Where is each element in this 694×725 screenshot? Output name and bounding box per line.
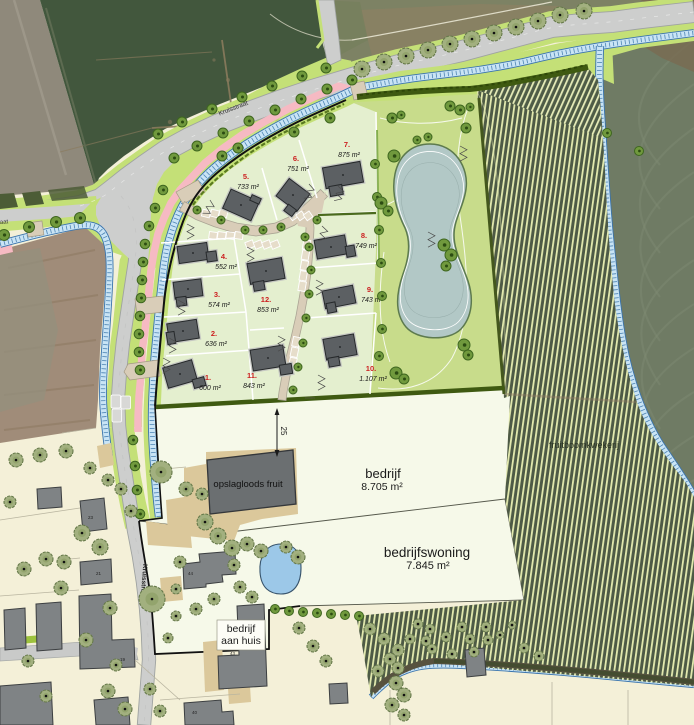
svg-text:853 m²: 853 m² (257, 307, 279, 314)
svg-text:574 m²: 574 m² (208, 302, 230, 309)
svg-text:8.705 m²: 8.705 m² (361, 481, 403, 493)
svg-text:opslagloods fruit: opslagloods fruit (213, 479, 283, 490)
svg-text:25: 25 (279, 427, 288, 436)
svg-text:23: 23 (88, 515, 94, 520)
svg-text:bedrijf: bedrijf (227, 623, 256, 635)
svg-text:3.: 3. (214, 290, 220, 299)
svg-text:21: 21 (96, 571, 102, 576)
svg-text:40: 40 (192, 710, 198, 715)
svg-text:843 m²: 843 m² (243, 383, 265, 390)
svg-text:11.: 11. (247, 371, 257, 380)
svg-text:5.: 5. (243, 172, 249, 181)
svg-text:bedrijfswoning: bedrijfswoning (384, 545, 470, 560)
svg-text:9.: 9. (367, 285, 373, 294)
svg-text:7.845 m²: 7.845 m² (406, 560, 450, 572)
svg-text:733 m²: 733 m² (237, 184, 259, 191)
svg-text:749 m²: 749 m² (355, 243, 377, 250)
svg-text:636 m²: 636 m² (205, 341, 227, 348)
svg-text:44: 44 (188, 571, 194, 576)
svg-text:751 m²: 751 m² (287, 166, 309, 173)
svg-text:bckcn: bckcn (305, 396, 314, 400)
svg-text:552 m²: 552 m² (215, 264, 237, 271)
svg-text:875 m²: 875 m² (338, 152, 360, 159)
svg-text:aan huis: aan huis (221, 635, 261, 647)
svg-text:19: 19 (120, 657, 126, 662)
svg-text:1.107 m²: 1.107 m² (359, 376, 387, 383)
svg-text:7.: 7. (344, 140, 350, 149)
svg-text:aat: aat (0, 219, 9, 226)
svg-text:12.: 12. (261, 295, 271, 304)
svg-text:8.: 8. (361, 231, 367, 240)
svg-text:6.: 6. (293, 154, 299, 163)
svg-text:10.: 10. (366, 364, 376, 373)
svg-text:1.: 1. (205, 373, 211, 382)
svg-text:43: 43 (230, 651, 236, 656)
svg-text:600 m²: 600 m² (199, 385, 221, 392)
svg-text:2.: 2. (211, 329, 217, 338)
svg-text:4.: 4. (221, 252, 227, 261)
svg-text:bedrijf: bedrijf (365, 466, 401, 481)
svg-text:fruitboomkwekerij: fruitboomkwekerij (549, 440, 619, 450)
